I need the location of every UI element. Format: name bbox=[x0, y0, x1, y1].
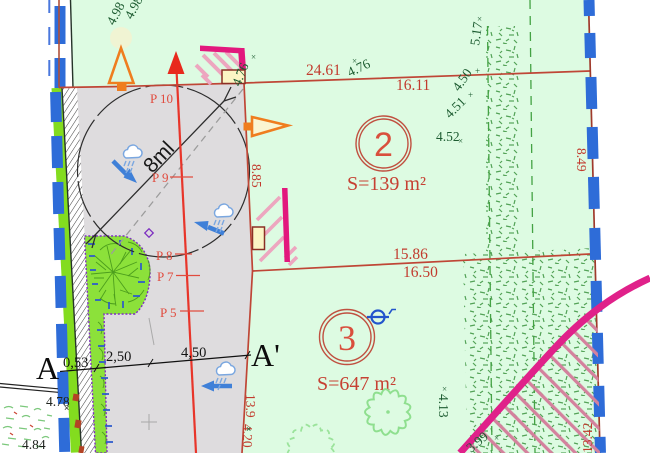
svg-text:8.85: 8.85 bbox=[249, 164, 264, 188]
svg-text:2: 2 bbox=[374, 126, 393, 164]
svg-text:24.61: 24.61 bbox=[306, 62, 341, 79]
svg-text:0,53: 0,53 bbox=[63, 355, 88, 371]
svg-text:8.49: 8.49 bbox=[574, 148, 589, 172]
svg-text:P 8: P 8 bbox=[156, 248, 173, 263]
svg-text:2,50: 2,50 bbox=[106, 349, 131, 365]
svg-text:4,50: 4,50 bbox=[181, 345, 206, 361]
svg-text:P 10: P 10 bbox=[150, 91, 173, 106]
svg-text:4.84: 4.84 bbox=[22, 437, 46, 452]
svg-text:13.42: 13.42 bbox=[580, 423, 595, 453]
svg-text:A: A bbox=[36, 350, 59, 386]
svg-text:×: × bbox=[251, 52, 256, 62]
svg-text:×: × bbox=[64, 403, 69, 413]
svg-text:P 9: P 9 bbox=[152, 170, 169, 185]
svg-text:A': A' bbox=[251, 337, 280, 373]
svg-text:3: 3 bbox=[338, 318, 356, 358]
svg-text:4.13: 4.13 bbox=[436, 394, 451, 418]
svg-text:×: × bbox=[458, 136, 463, 146]
svg-text:×: × bbox=[477, 14, 482, 24]
svg-text:+: + bbox=[468, 90, 473, 100]
svg-text:×: × bbox=[442, 384, 447, 394]
svg-text:S=139 m²: S=139 m² bbox=[347, 173, 426, 195]
svg-text:P 5: P 5 bbox=[160, 305, 177, 320]
svg-text:×: × bbox=[246, 424, 251, 434]
svg-text:×: × bbox=[494, 433, 499, 443]
svg-text:P 7: P 7 bbox=[157, 269, 174, 284]
svg-text:13.9: 13.9 bbox=[243, 394, 258, 418]
svg-text:16.50: 16.50 bbox=[403, 264, 438, 281]
svg-text:×: × bbox=[352, 56, 357, 66]
svg-text:15.86: 15.86 bbox=[393, 246, 428, 263]
svg-text:16.11: 16.11 bbox=[396, 77, 430, 94]
svg-text:+: + bbox=[475, 66, 480, 76]
svg-text:4.52: 4.52 bbox=[436, 129, 460, 144]
svg-text:S=647 m²: S=647 m² bbox=[317, 373, 396, 395]
